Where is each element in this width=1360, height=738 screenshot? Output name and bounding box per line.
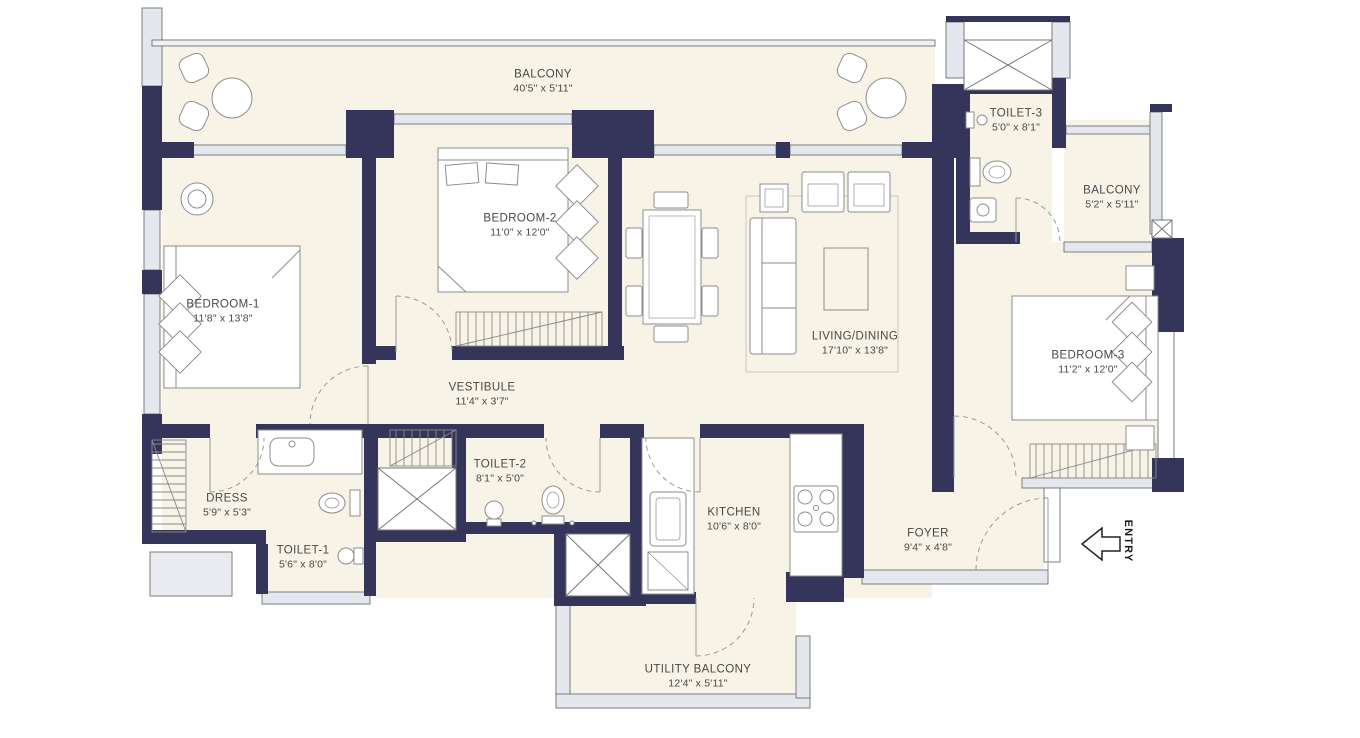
room-label-vestibule: VESTIBULE 11'4" x 3'7" (449, 381, 516, 410)
room-label-living-dining: LIVING/DINING 17'10" x 13'8" (812, 330, 898, 359)
room-label-bedroom-2: BEDROOM-2 11'0" x 12'0" (483, 212, 556, 241)
room-label-balcony-top: BALCONY 40'5" x 5'11" (513, 68, 572, 97)
floor-plan: BALCONY 40'5" x 5'11" TOILET-3 5'0" x 8'… (0, 0, 1360, 738)
room-label-utility-balcony: UTILITY BALCONY 12'4" x 5'11" (645, 663, 752, 692)
room-label-toilet-1: TOILET-1 5'6" x 8'0" (277, 544, 330, 573)
room-label-toilet-3: TOILET-3 5'0" x 8'1" (990, 107, 1043, 136)
room-label-dress: DRESS 5'9" x 5'3" (203, 492, 251, 521)
room-label-bedroom-1: BEDROOM-1 11'8" x 13'8" (186, 298, 259, 327)
entry-arrow-icon (1082, 528, 1120, 560)
room-label-bedroom-3: BEDROOM-3 11'2" x 12'0" (1051, 349, 1124, 378)
room-label-foyer: FOYER 9'4" x 4'8" (904, 527, 952, 556)
floor-plan-drawing (0, 0, 1360, 738)
room-label-kitchen: KITCHEN 10'6" x 8'0" (707, 506, 761, 535)
entry-label: ENTRY (1122, 520, 1134, 563)
room-label-toilet-2: TOILET-2 8'1" x 5'0" (474, 458, 527, 487)
room-label-balcony-right: BALCONY 5'2" x 5'11" (1083, 184, 1141, 213)
